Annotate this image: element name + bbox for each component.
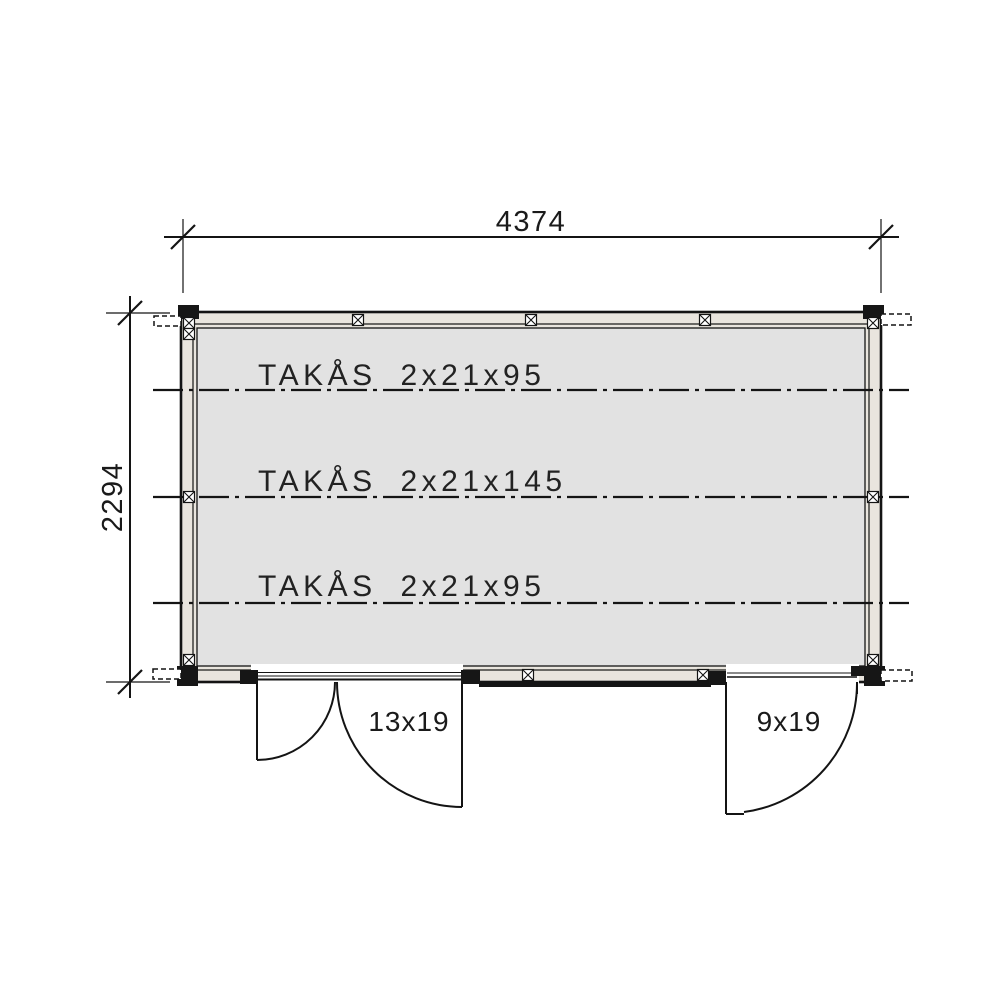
anchor-box	[526, 315, 537, 326]
opening-cut-left	[251, 664, 463, 686]
jamb-post	[709, 671, 726, 685]
door-swing-arc	[744, 684, 857, 812]
jamb-post	[461, 670, 480, 684]
purlin-label-2: TAKÅS 2x21x145	[258, 465, 567, 498]
jamb-post	[851, 666, 864, 676]
anchor-box	[184, 492, 195, 503]
anchor-box	[523, 670, 534, 681]
floor-plan-canvas: 4374 2294 TAKÅS 2x21x95 TAKÅS 2x21x145 T…	[0, 0, 1000, 1000]
opening-cut-right	[726, 664, 859, 686]
dimension-height-label: 2294	[97, 462, 129, 533]
corner-post-top-right	[863, 305, 884, 319]
purlin-label-1: TAKÅS 2x21x95	[258, 359, 545, 392]
purlin-label-3: TAKÅS 2x21x95	[258, 570, 545, 603]
beam-end-top-left	[154, 316, 181, 326]
anchor-box	[700, 315, 711, 326]
anchor-box	[353, 315, 364, 326]
beam-end-top-right	[881, 314, 911, 325]
door-swing-arc-left	[257, 682, 335, 760]
single-door-size-label: 9x19	[757, 706, 822, 737]
anchor-box	[868, 655, 879, 666]
floor-plan-drawing: 4374 2294 TAKÅS 2x21x95 TAKÅS 2x21x145 T…	[0, 0, 1000, 1000]
anchor-box	[698, 670, 709, 681]
anchor-box	[868, 492, 879, 503]
beam-end-bottom-left	[153, 669, 181, 679]
anchor-box	[184, 329, 195, 340]
single-door	[726, 682, 857, 814]
dimension-top: 4374	[164, 206, 899, 293]
dimension-width-label: 4374	[496, 206, 567, 238]
anchor-box	[184, 318, 195, 329]
door-swing-arc-right	[337, 682, 462, 807]
double-door-size-label: 13x19	[368, 706, 449, 737]
beam-end-bottom-right	[881, 670, 912, 681]
anchor-box	[868, 318, 879, 329]
anchor-box	[184, 655, 195, 666]
double-door	[257, 682, 462, 807]
jamb-post	[240, 670, 258, 684]
